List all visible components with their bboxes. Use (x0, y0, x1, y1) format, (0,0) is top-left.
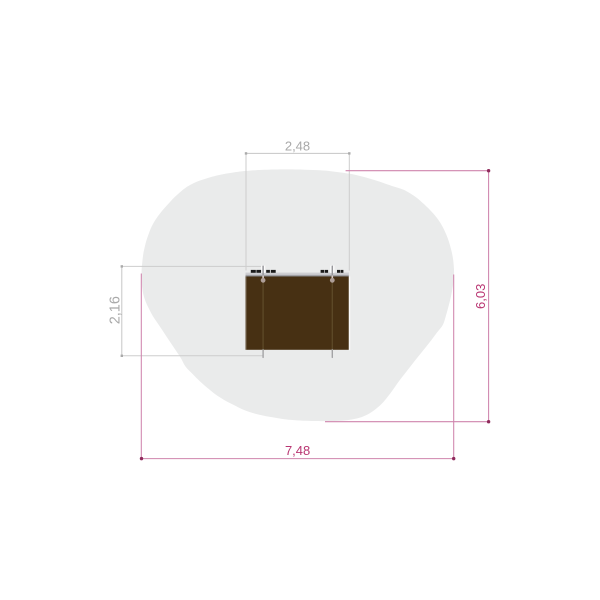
svg-text:2,48: 2,48 (285, 138, 310, 153)
svg-text:7,48: 7,48 (285, 443, 310, 458)
svg-text:6,03: 6,03 (473, 284, 488, 309)
svg-text:2,16: 2,16 (108, 296, 124, 324)
